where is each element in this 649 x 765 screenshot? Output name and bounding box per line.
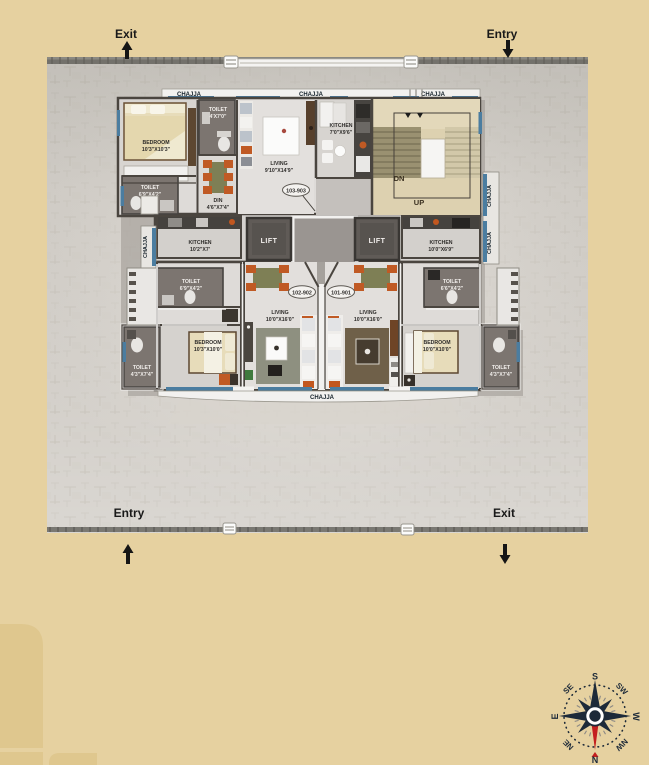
- svg-text:CHAJJA: CHAJJA: [487, 232, 493, 254]
- svg-text:Exit: Exit: [493, 506, 515, 520]
- svg-text:KITCHEN: KITCHEN: [429, 240, 452, 246]
- svg-text:E: E: [550, 713, 560, 719]
- svg-text:4'3"X7'4": 4'3"X7'4": [490, 372, 513, 378]
- svg-text:10'0"X16'0": 10'0"X16'0": [266, 317, 295, 323]
- svg-text:DIN: DIN: [214, 198, 223, 204]
- svg-text:Entry: Entry: [487, 27, 518, 41]
- svg-text:10'3"X10'3": 10'3"X10'3": [142, 147, 171, 153]
- svg-text:Entry: Entry: [114, 506, 145, 520]
- svg-text:10'0"X16'0": 10'0"X16'0": [354, 317, 383, 323]
- svg-text:BEDROOM: BEDROOM: [423, 340, 450, 346]
- svg-text:9'10"X14'9": 9'10"X14'9": [265, 168, 294, 174]
- svg-text:TOILET: TOILET: [141, 185, 160, 191]
- svg-text:7'0"X9'6": 7'0"X9'6": [330, 130, 353, 136]
- svg-text:BEDROOM: BEDROOM: [194, 340, 221, 346]
- svg-text:LIFT: LIFT: [261, 238, 278, 245]
- svg-text:CHAJJA: CHAJJA: [143, 236, 149, 258]
- svg-text:TOILET: TOILET: [492, 365, 511, 371]
- svg-text:10'3"X10'0": 10'3"X10'0": [194, 347, 223, 353]
- svg-text:10'0"X6'9": 10'0"X6'9": [428, 247, 454, 253]
- svg-text:N: N: [592, 755, 599, 765]
- svg-text:W: W: [631, 712, 641, 721]
- svg-text:DN: DN: [394, 174, 405, 183]
- svg-text:101-901: 101-901: [331, 291, 351, 297]
- svg-text:TOILET: TOILET: [209, 107, 228, 113]
- svg-text:TOILET: TOILET: [443, 279, 462, 285]
- svg-text:6'6"X4'2": 6'6"X4'2": [441, 286, 464, 292]
- svg-text:Exit: Exit: [115, 27, 137, 41]
- svg-text:BEDROOM: BEDROOM: [142, 140, 169, 146]
- svg-text:TOILET: TOILET: [182, 279, 201, 285]
- svg-text:LIVING: LIVING: [271, 310, 288, 316]
- svg-text:10'0"X10'0": 10'0"X10'0": [423, 347, 452, 353]
- svg-text:102-902: 102-902: [292, 291, 312, 297]
- svg-text:CHAJJA: CHAJJA: [487, 185, 493, 207]
- svg-text:103-903: 103-903: [286, 189, 306, 195]
- svg-text:4'3"X7'4": 4'3"X7'4": [131, 372, 154, 378]
- svg-text:KITCHEN: KITCHEN: [188, 240, 211, 246]
- svg-text:CHAJJA: CHAJJA: [310, 395, 335, 401]
- svg-text:4'6"X7'4": 4'6"X7'4": [207, 205, 230, 211]
- svg-text:UP: UP: [414, 198, 424, 207]
- svg-text:LIVING: LIVING: [270, 161, 287, 167]
- svg-text:10'2"X7': 10'2"X7': [190, 247, 210, 253]
- svg-text:LIFT: LIFT: [369, 238, 386, 245]
- svg-text:TOILET: TOILET: [133, 365, 152, 371]
- svg-text:LIVING: LIVING: [359, 310, 376, 316]
- svg-text:S: S: [592, 672, 598, 682]
- svg-text:KITCHEN: KITCHEN: [329, 123, 352, 129]
- svg-text:6'9"X4'2": 6'9"X4'2": [180, 286, 203, 292]
- svg-text:4'X7'0": 4'X7'0": [209, 114, 227, 120]
